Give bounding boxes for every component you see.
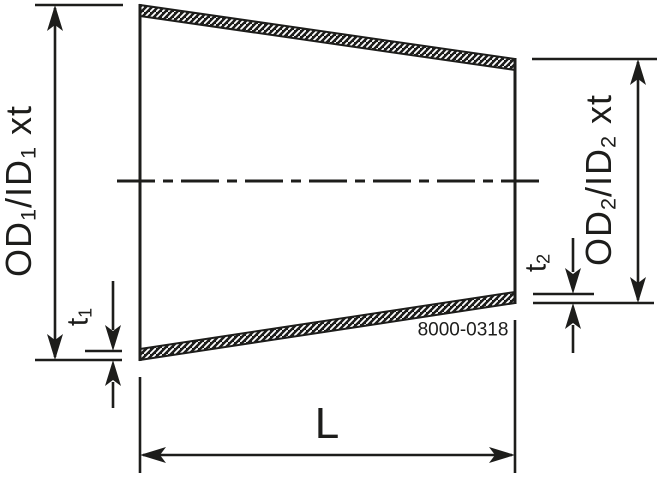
id1-subscript: 1 bbox=[16, 146, 41, 159]
od1-dimension-label: OD1/ID1 xt bbox=[1, 105, 39, 277]
od1-suffix: xt bbox=[0, 105, 39, 146]
length-dimension-label: L bbox=[315, 402, 339, 446]
od1-text: OD bbox=[0, 221, 39, 277]
od2-suffix: xt bbox=[578, 94, 619, 135]
id2-subscript: 2 bbox=[596, 135, 621, 148]
top-wall-section bbox=[140, 5, 515, 70]
id2-text: /ID bbox=[578, 148, 619, 197]
t2-dimension-label: t2 bbox=[522, 254, 553, 272]
reducer-drawing: OD1/ID1 xt OD2/ID2 xt t1 t2 L 8000-0318 bbox=[0, 0, 659, 477]
od2-text: OD bbox=[578, 210, 619, 266]
od1-dimension bbox=[35, 5, 123, 360]
od2-subscript: 2 bbox=[596, 197, 621, 210]
od2-dimension-label: OD2/ID2 xt bbox=[581, 94, 619, 266]
t2-text: t bbox=[520, 264, 553, 272]
od1-subscript: 1 bbox=[16, 208, 41, 221]
t1-text: t bbox=[62, 318, 95, 326]
id1-text: /ID bbox=[0, 159, 39, 208]
t1-dimension bbox=[85, 281, 122, 408]
t1-dimension-label: t1 bbox=[64, 308, 95, 326]
t1-subscript: 1 bbox=[75, 308, 95, 318]
t2-subscript: 2 bbox=[533, 254, 553, 264]
part-number: 8000-0318 bbox=[418, 321, 509, 340]
